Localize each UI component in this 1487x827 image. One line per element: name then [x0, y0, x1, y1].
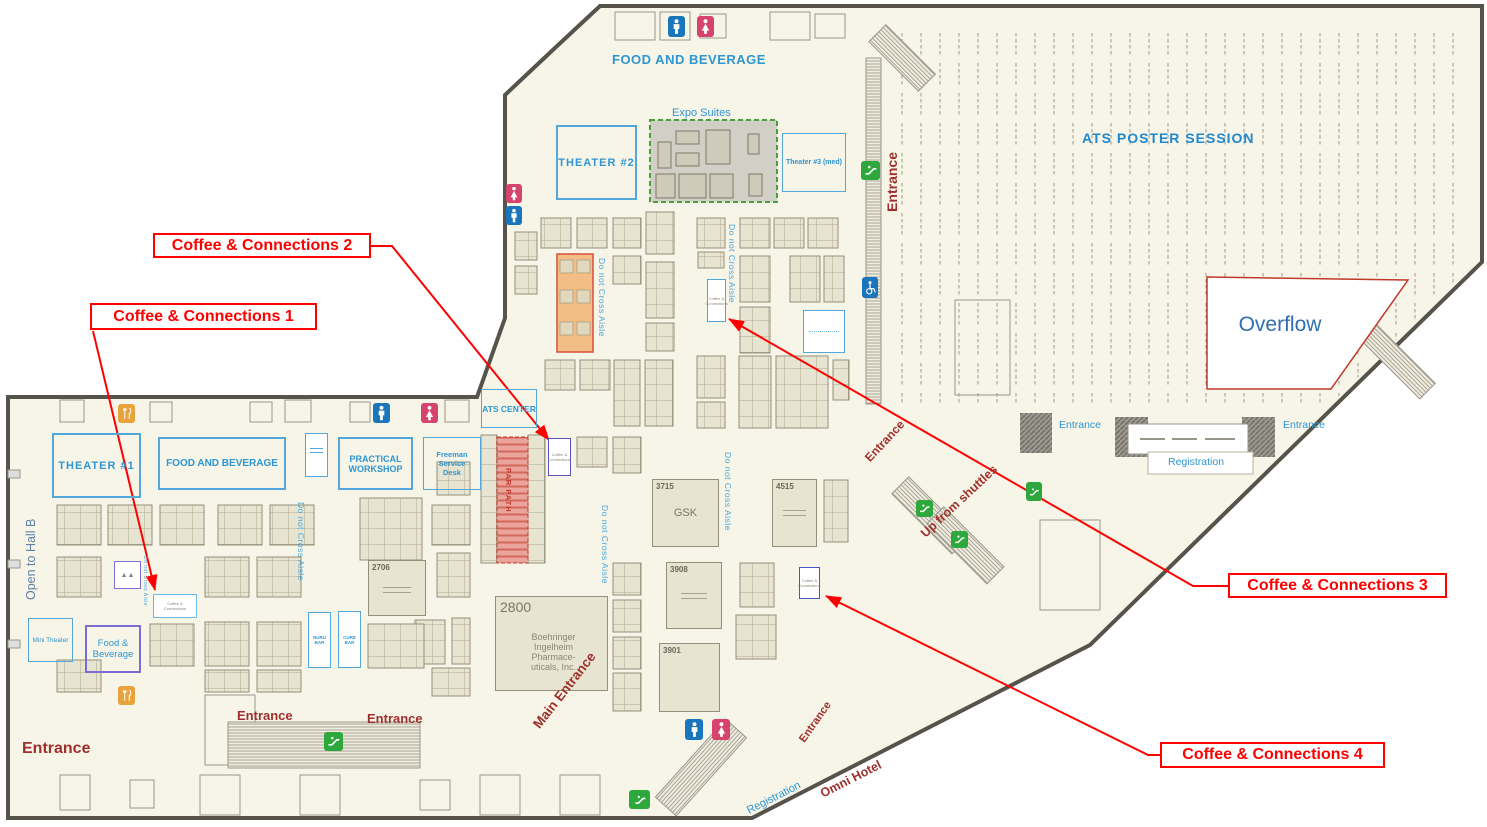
- mens-restroom-icon: [668, 16, 685, 37]
- food-icon: [118, 686, 135, 705]
- booth-3715: 3715 GSK: [652, 479, 719, 547]
- nuru-bar-label: NURU BAR: [312, 635, 328, 645]
- freeman-desk-label: Freeman Service Desk: [432, 450, 472, 477]
- womens-restroom-icon: [506, 184, 522, 203]
- booth-2706-number: 2706: [372, 563, 390, 572]
- par-path-label: PAR PATH: [504, 468, 513, 513]
- booth-3715-number: 3715: [656, 482, 674, 491]
- coffee-connections-3-booth: Coffee & Connections: [707, 279, 726, 322]
- mens-restroom-icon: [685, 719, 703, 740]
- theater-1-box: THEATER #1: [52, 433, 141, 498]
- coffee-connections-4-booth: Coffee & Connections: [799, 567, 820, 599]
- triangle-booth: ▲▲: [114, 561, 141, 589]
- theater-3-label: Theater #3 (med): [786, 159, 842, 166]
- callout-coffee-connections-3: Coffee & Connections 3: [1228, 573, 1447, 598]
- mini-theater-label: Mini Theater: [32, 637, 68, 644]
- mens-restroom-icon: [506, 206, 522, 225]
- theater-3-box: Theater #3 (med): [782, 133, 846, 192]
- booth-4515: 4515: [772, 479, 817, 547]
- do-not-cross-label-1: Do not Cross Aisle: [597, 258, 607, 337]
- food-beverage-left-box: FOOD AND BEVERAGE: [158, 437, 286, 490]
- booth-4515-number: 4515: [776, 482, 794, 491]
- coffee-connections-2-booth: Coffee & Connections: [548, 438, 571, 476]
- floorplan-underlay: [0, 0, 1487, 827]
- accessibility-icon: [862, 277, 878, 298]
- do-not-cross-label-5: Do not Cross Aisle: [296, 502, 306, 581]
- mens-restroom-icon: [373, 403, 390, 423]
- cure-bar-label: CURE BAR: [342, 635, 358, 645]
- food-beverage-small-label: Food & Beverage: [88, 638, 138, 660]
- escalator-icon: [324, 732, 343, 751]
- entrance-label-bottom-1: Entrance: [237, 708, 293, 723]
- food-beverage-top-label: FOOD AND BEVERAGE: [612, 52, 766, 67]
- registration-label-right: Registration: [1168, 456, 1224, 468]
- booth-3908-number: 3908: [670, 565, 688, 574]
- booth-2706: 2706: [368, 560, 426, 616]
- escalator-icon: [951, 531, 968, 548]
- overflow-label: Overflow: [1225, 310, 1335, 340]
- expo-floorplan: THEATER #2 Expo Suites Theater #3 (med) …: [0, 0, 1487, 827]
- booth-3901: 3901: [659, 643, 720, 712]
- womens-restroom-icon: [712, 719, 730, 740]
- escalator-icon: [861, 161, 880, 180]
- info-booth: [803, 310, 845, 353]
- expo-suites-label: Expo Suites: [672, 107, 731, 119]
- do-not-cross-label-3: Do not Cross Aisle: [723, 452, 733, 531]
- entrance-label-blue-2: Entrance: [1283, 419, 1325, 431]
- entrance-label-bottom-left: Entrance: [22, 740, 90, 758]
- womens-restroom-icon: [421, 403, 438, 423]
- practical-workshop-box: PRACTICAL WORKSHOP: [338, 437, 413, 490]
- booth-2800: 2800 Boehringer Ingelheim Pharmace- utic…: [495, 596, 608, 691]
- freeman-desk-box: Freeman Service Desk: [423, 437, 481, 490]
- womens-restroom-icon: [697, 16, 714, 37]
- escalator-icon: [629, 790, 650, 809]
- practical-workshop-label: PRACTICAL WORKSHOP: [340, 454, 411, 474]
- escalator-icon: [916, 500, 933, 517]
- booth-3715-name: GSK: [653, 498, 718, 528]
- nuru-bar-box: NURU BAR: [308, 612, 331, 668]
- booth-3908: 3908: [666, 562, 722, 629]
- cure-bar-box: CURE BAR: [338, 611, 361, 668]
- do-not-cross-label-2: Do not Cross Aisle: [727, 224, 737, 303]
- do-not-cross-label-4: Do not Cross Aisle: [600, 505, 610, 584]
- entrance-label-bottom-2: Entrance: [367, 711, 423, 726]
- ats-center-label: ATS CENTER: [482, 404, 536, 414]
- entrance-label-blue-1: Entrance: [1059, 419, 1101, 431]
- open-to-hall-b-label: Open to Hall B: [24, 500, 38, 600]
- poster-session-label: ATS POSTER SESSION: [1082, 130, 1255, 146]
- booth-2800-number: 2800: [500, 599, 531, 615]
- theater-2-label: THEATER #2: [558, 157, 634, 169]
- food-beverage-small-box: Food & Beverage: [85, 625, 141, 673]
- orange-strip: [557, 254, 593, 352]
- small-booth-box: [305, 433, 328, 477]
- booth-3901-number: 3901: [663, 646, 681, 655]
- do-not-cross-label-6: Do not Cross Aisle: [142, 556, 148, 606]
- coffee-connections-1-booth: Coffee & Connections: [153, 594, 197, 618]
- ats-center-box: ATS CENTER: [481, 389, 537, 428]
- callout-coffee-connections-1: Coffee & Connections 1: [90, 303, 317, 330]
- callout-coffee-connections-4: Coffee & Connections 4: [1160, 742, 1385, 768]
- callout-coffee-connections-2: Coffee & Connections 2: [153, 233, 371, 258]
- theater-2-box: THEATER #2: [556, 125, 637, 200]
- entrance-label-right-vertical: Entrance: [884, 152, 900, 212]
- food-icon: [118, 404, 135, 423]
- expo-suites-block: [650, 120, 777, 202]
- mini-theater-box: Mini Theater: [28, 618, 73, 662]
- escalator-icon: [1026, 482, 1042, 501]
- theater-1-label: THEATER #1: [58, 460, 134, 472]
- food-beverage-left-label: FOOD AND BEVERAGE: [166, 458, 278, 469]
- entrance-corridor-wall: [866, 58, 881, 404]
